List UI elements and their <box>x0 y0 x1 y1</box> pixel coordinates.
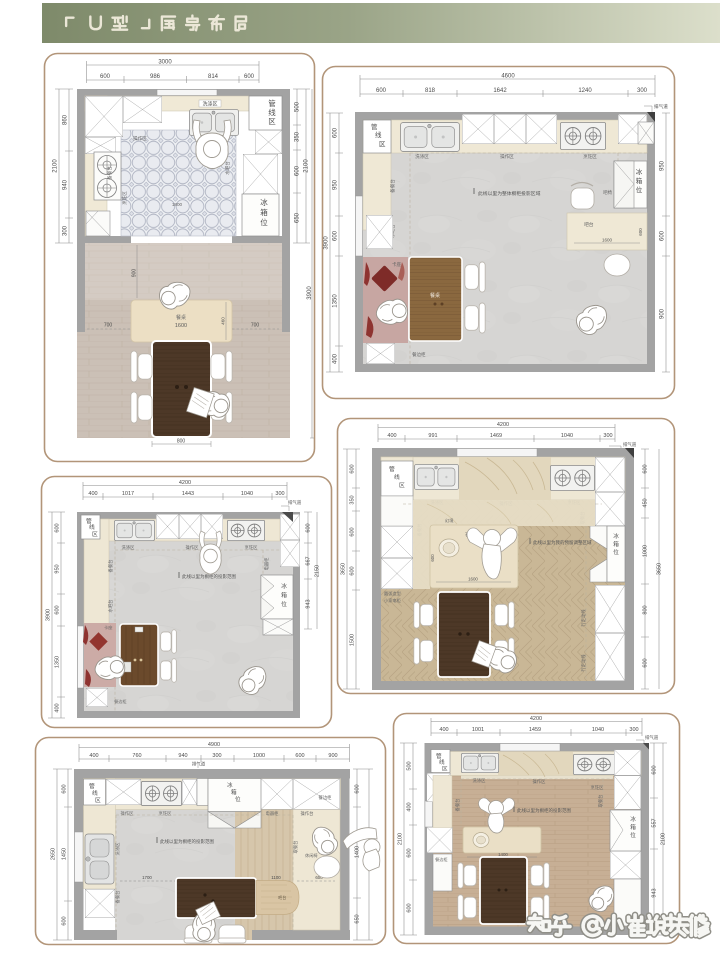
svg-text:餐桌: 餐桌 <box>176 314 186 321</box>
svg-text:区: 区 <box>399 482 405 489</box>
svg-text:区: 区 <box>379 140 386 148</box>
svg-text:线: 线 <box>394 473 400 481</box>
svg-text:排气道: 排气道 <box>192 761 206 768</box>
svg-text:备餐台: 备餐台 <box>389 179 396 193</box>
svg-text:900: 900 <box>328 753 337 759</box>
svg-text:300: 300 <box>603 433 612 439</box>
svg-text:此线以里为橱柜的投影范围: 此线以里为橱柜的投影范围 <box>517 807 571 814</box>
svg-text:位: 位 <box>636 185 643 194</box>
svg-text:860: 860 <box>63 114 69 125</box>
svg-text:4200: 4200 <box>497 422 509 428</box>
svg-text:650: 650 <box>355 914 361 923</box>
svg-text:备餐台: 备餐台 <box>114 891 121 904</box>
svg-text:600: 600 <box>407 848 413 857</box>
svg-text:3900: 3900 <box>46 609 52 621</box>
svg-text:1459: 1459 <box>529 727 541 733</box>
svg-text:电器柜: 电器柜 <box>266 810 280 817</box>
svg-text:600: 600 <box>660 230 666 241</box>
svg-text:1600: 1600 <box>175 323 187 329</box>
svg-text:300: 300 <box>637 88 648 94</box>
svg-text:400: 400 <box>88 491 97 497</box>
svg-text:箱: 箱 <box>281 591 287 599</box>
svg-text:线: 线 <box>92 789 98 797</box>
svg-text:400: 400 <box>407 802 413 811</box>
svg-text:1600: 1600 <box>602 238 613 243</box>
svg-text:300: 300 <box>275 491 284 497</box>
svg-text:冰: 冰 <box>636 167 643 176</box>
svg-text:位: 位 <box>613 548 619 556</box>
svg-text:1642: 1642 <box>493 88 507 94</box>
svg-text:烹饪区: 烹饪区 <box>121 191 128 205</box>
svg-text:洗涤区: 洗涤区 <box>202 101 217 108</box>
svg-text:400: 400 <box>439 727 448 733</box>
svg-text:操作区: 操作区 <box>186 544 200 551</box>
svg-text:3900: 3900 <box>307 286 313 300</box>
svg-text:300: 300 <box>212 753 221 759</box>
svg-text:400: 400 <box>333 353 339 364</box>
svg-text:600: 600 <box>333 127 339 138</box>
svg-text:400: 400 <box>89 753 98 759</box>
svg-text:667: 667 <box>306 556 312 565</box>
svg-text:700: 700 <box>104 323 113 329</box>
svg-text:位: 位 <box>630 831 636 839</box>
svg-text:1450: 1450 <box>62 848 68 860</box>
svg-text:1700: 1700 <box>142 875 152 880</box>
svg-text:冰: 冰 <box>281 582 287 590</box>
svg-text:3000: 3000 <box>158 60 172 66</box>
svg-text:760: 760 <box>132 753 141 759</box>
svg-text:400: 400 <box>55 703 61 712</box>
svg-text:操作台: 操作台 <box>301 810 314 817</box>
svg-text:4600: 4600 <box>501 74 515 80</box>
svg-text:线: 线 <box>439 758 445 766</box>
svg-text:水吧台: 水吧台 <box>224 161 231 175</box>
svg-text:1800: 1800 <box>172 202 183 207</box>
svg-text:400: 400 <box>387 433 396 439</box>
svg-text:洗涤区: 洗涤区 <box>415 153 429 160</box>
svg-text:位: 位 <box>281 600 287 608</box>
svg-text:460: 460 <box>221 317 226 325</box>
svg-text:600: 600 <box>643 464 649 473</box>
svg-text:650: 650 <box>295 212 301 223</box>
svg-text:箱: 箱 <box>260 207 268 217</box>
svg-text:区: 区 <box>95 797 101 804</box>
svg-text:4200: 4200 <box>179 480 191 486</box>
svg-text:900: 900 <box>132 269 138 278</box>
svg-text:814: 814 <box>208 74 219 80</box>
svg-text:600: 600 <box>295 165 301 176</box>
svg-text:圆弧造型: 圆弧造型 <box>384 590 401 597</box>
svg-text:此线以里为橱柜的投影范围: 此线以里为橱柜的投影范围 <box>160 838 214 845</box>
svg-text:600: 600 <box>62 916 68 925</box>
svg-text:餐边柜: 餐边柜 <box>435 856 448 863</box>
svg-text:1500: 1500 <box>350 634 356 646</box>
svg-text:吧椅: 吧椅 <box>603 189 612 195</box>
svg-text:区: 区 <box>268 117 276 126</box>
svg-text:450: 450 <box>643 498 649 507</box>
svg-text:2150: 2150 <box>315 565 321 577</box>
svg-text:餐边柜: 餐边柜 <box>114 698 127 705</box>
svg-text:600: 600 <box>244 74 255 80</box>
svg-text:箱: 箱 <box>636 176 643 185</box>
svg-text:4200: 4200 <box>530 716 542 722</box>
svg-text:卡座: 卡座 <box>104 624 112 631</box>
svg-text:操作区: 操作区 <box>133 135 147 142</box>
svg-text:600: 600 <box>350 464 356 473</box>
svg-text:餐边柜: 餐边柜 <box>412 351 426 358</box>
svg-text:1443: 1443 <box>182 491 194 497</box>
svg-text:烹饪区: 烹饪区 <box>159 810 173 817</box>
svg-text:管: 管 <box>389 465 395 473</box>
svg-text:500: 500 <box>295 101 301 112</box>
svg-text:600: 600 <box>100 74 111 80</box>
svg-text:操作区: 操作区 <box>121 810 135 817</box>
svg-text:600: 600 <box>407 903 413 912</box>
svg-text:1001: 1001 <box>472 727 484 733</box>
svg-text:3650: 3650 <box>341 563 347 575</box>
svg-text:500: 500 <box>407 761 413 770</box>
svg-text:箱: 箱 <box>630 823 636 831</box>
svg-text:管: 管 <box>89 782 95 790</box>
svg-text:991: 991 <box>428 433 437 439</box>
svg-text:600: 600 <box>376 88 387 94</box>
svg-text:休闲椅: 休闲椅 <box>305 852 318 859</box>
svg-text:此线以里为整体橱柜投影区域: 此线以里为整体橱柜投影区域 <box>478 190 541 197</box>
svg-text:水吧台: 水吧台 <box>107 600 114 613</box>
svg-text:3650: 3650 <box>657 563 663 575</box>
svg-text:1000: 1000 <box>253 753 265 759</box>
svg-text:950: 950 <box>660 160 666 171</box>
svg-text:350: 350 <box>350 495 356 504</box>
svg-text:900: 900 <box>660 308 666 319</box>
svg-text:备餐台: 备餐台 <box>106 166 113 180</box>
svg-text:餐边柜: 餐边柜 <box>319 794 333 801</box>
svg-text:位: 位 <box>235 795 241 803</box>
svg-text:943: 943 <box>306 599 312 608</box>
svg-text:1350: 1350 <box>55 656 61 668</box>
svg-text:排气道: 排气道 <box>645 734 659 741</box>
svg-text:箱: 箱 <box>613 540 619 548</box>
svg-text:1350: 1350 <box>333 294 339 308</box>
svg-text:2100: 2100 <box>398 833 404 845</box>
svg-text:557: 557 <box>652 818 658 827</box>
svg-text:餐桌: 餐桌 <box>430 292 440 299</box>
svg-text:2100: 2100 <box>53 159 59 173</box>
svg-text:线: 线 <box>375 130 382 139</box>
svg-text:1040: 1040 <box>561 433 573 439</box>
svg-text:备餐台: 备餐台 <box>454 799 461 812</box>
svg-text:600: 600 <box>62 784 68 793</box>
svg-text:冰: 冰 <box>227 781 233 789</box>
svg-text:吧台: 吧台 <box>278 894 286 901</box>
svg-text:洗涤区: 洗涤区 <box>473 777 487 784</box>
svg-text:卡座: 卡座 <box>392 261 401 268</box>
svg-text:箱: 箱 <box>231 788 237 796</box>
svg-text:1469: 1469 <box>490 433 502 439</box>
svg-text:950: 950 <box>333 179 339 190</box>
svg-text:区: 区 <box>92 531 98 538</box>
svg-text:吧台: 吧台 <box>584 221 594 228</box>
svg-text:600: 600 <box>350 566 356 575</box>
svg-text:线: 线 <box>89 523 95 531</box>
svg-text:940: 940 <box>178 753 187 759</box>
svg-text:600: 600 <box>306 523 312 532</box>
svg-text:600: 600 <box>430 554 435 562</box>
svg-text:管: 管 <box>436 752 442 760</box>
svg-text:排气道: 排气道 <box>623 441 637 448</box>
svg-text:600: 600 <box>638 228 643 236</box>
svg-text:冰: 冰 <box>630 815 636 823</box>
svg-text:位: 位 <box>260 217 268 227</box>
svg-text:800: 800 <box>177 439 186 445</box>
svg-text:600: 600 <box>55 523 61 532</box>
svg-text:950: 950 <box>55 564 61 573</box>
svg-text:幻境: 幻境 <box>445 517 453 524</box>
svg-text:3900: 3900 <box>324 236 330 250</box>
svg-text:2100: 2100 <box>661 833 667 845</box>
svg-text:电器柜: 电器柜 <box>263 557 270 571</box>
svg-text:943: 943 <box>652 888 658 897</box>
svg-text:1100: 1100 <box>271 875 281 880</box>
svg-text:1000: 1000 <box>643 545 649 557</box>
svg-text:管: 管 <box>86 517 92 525</box>
svg-text:940: 940 <box>63 179 69 190</box>
svg-text:洗涤区: 洗涤区 <box>114 842 121 856</box>
svg-text:600: 600 <box>55 605 61 614</box>
svg-text:1017: 1017 <box>122 491 134 497</box>
svg-text:1040: 1040 <box>241 491 253 497</box>
svg-text:300: 300 <box>63 225 69 236</box>
svg-text:此线以里为我的预留调整区域: 此线以里为我的预留调整区域 <box>533 539 592 546</box>
svg-text:600: 600 <box>652 765 658 774</box>
svg-text:冰: 冰 <box>613 532 619 540</box>
svg-text:烹饪区: 烹饪区 <box>591 784 605 791</box>
svg-text:600: 600 <box>643 658 649 667</box>
svg-text:排气道: 排气道 <box>288 499 302 506</box>
svg-text:800: 800 <box>643 605 649 614</box>
svg-text:1600: 1600 <box>468 577 478 582</box>
svg-text:小家电柜: 小家电柜 <box>384 597 401 604</box>
svg-text:操作区: 操作区 <box>500 153 514 160</box>
svg-text:排气道: 排气道 <box>654 103 668 110</box>
svg-text:2650: 2650 <box>51 848 57 860</box>
svg-text:区: 区 <box>442 766 448 773</box>
svg-text:1240: 1240 <box>578 88 592 94</box>
svg-text:818: 818 <box>425 88 436 94</box>
svg-text:600: 600 <box>350 527 356 536</box>
svg-text:350: 350 <box>295 131 301 142</box>
svg-text:1040: 1040 <box>592 727 604 733</box>
svg-text:700: 700 <box>251 323 260 329</box>
svg-text:备餐台: 备餐台 <box>107 560 114 573</box>
svg-text:600: 600 <box>355 784 361 793</box>
svg-text:烹饪区: 烹饪区 <box>583 153 597 160</box>
svg-text:600: 600 <box>295 753 304 759</box>
svg-text:300: 300 <box>629 727 638 733</box>
svg-text:管: 管 <box>371 122 378 131</box>
svg-text:4900: 4900 <box>208 742 220 748</box>
svg-text:管: 管 <box>268 98 276 108</box>
svg-text:1400: 1400 <box>355 846 361 858</box>
svg-text:2100: 2100 <box>304 159 310 173</box>
svg-text:冰: 冰 <box>260 197 268 207</box>
svg-text:600: 600 <box>333 230 339 241</box>
svg-text:986: 986 <box>150 74 161 80</box>
svg-text:线: 线 <box>268 107 276 117</box>
